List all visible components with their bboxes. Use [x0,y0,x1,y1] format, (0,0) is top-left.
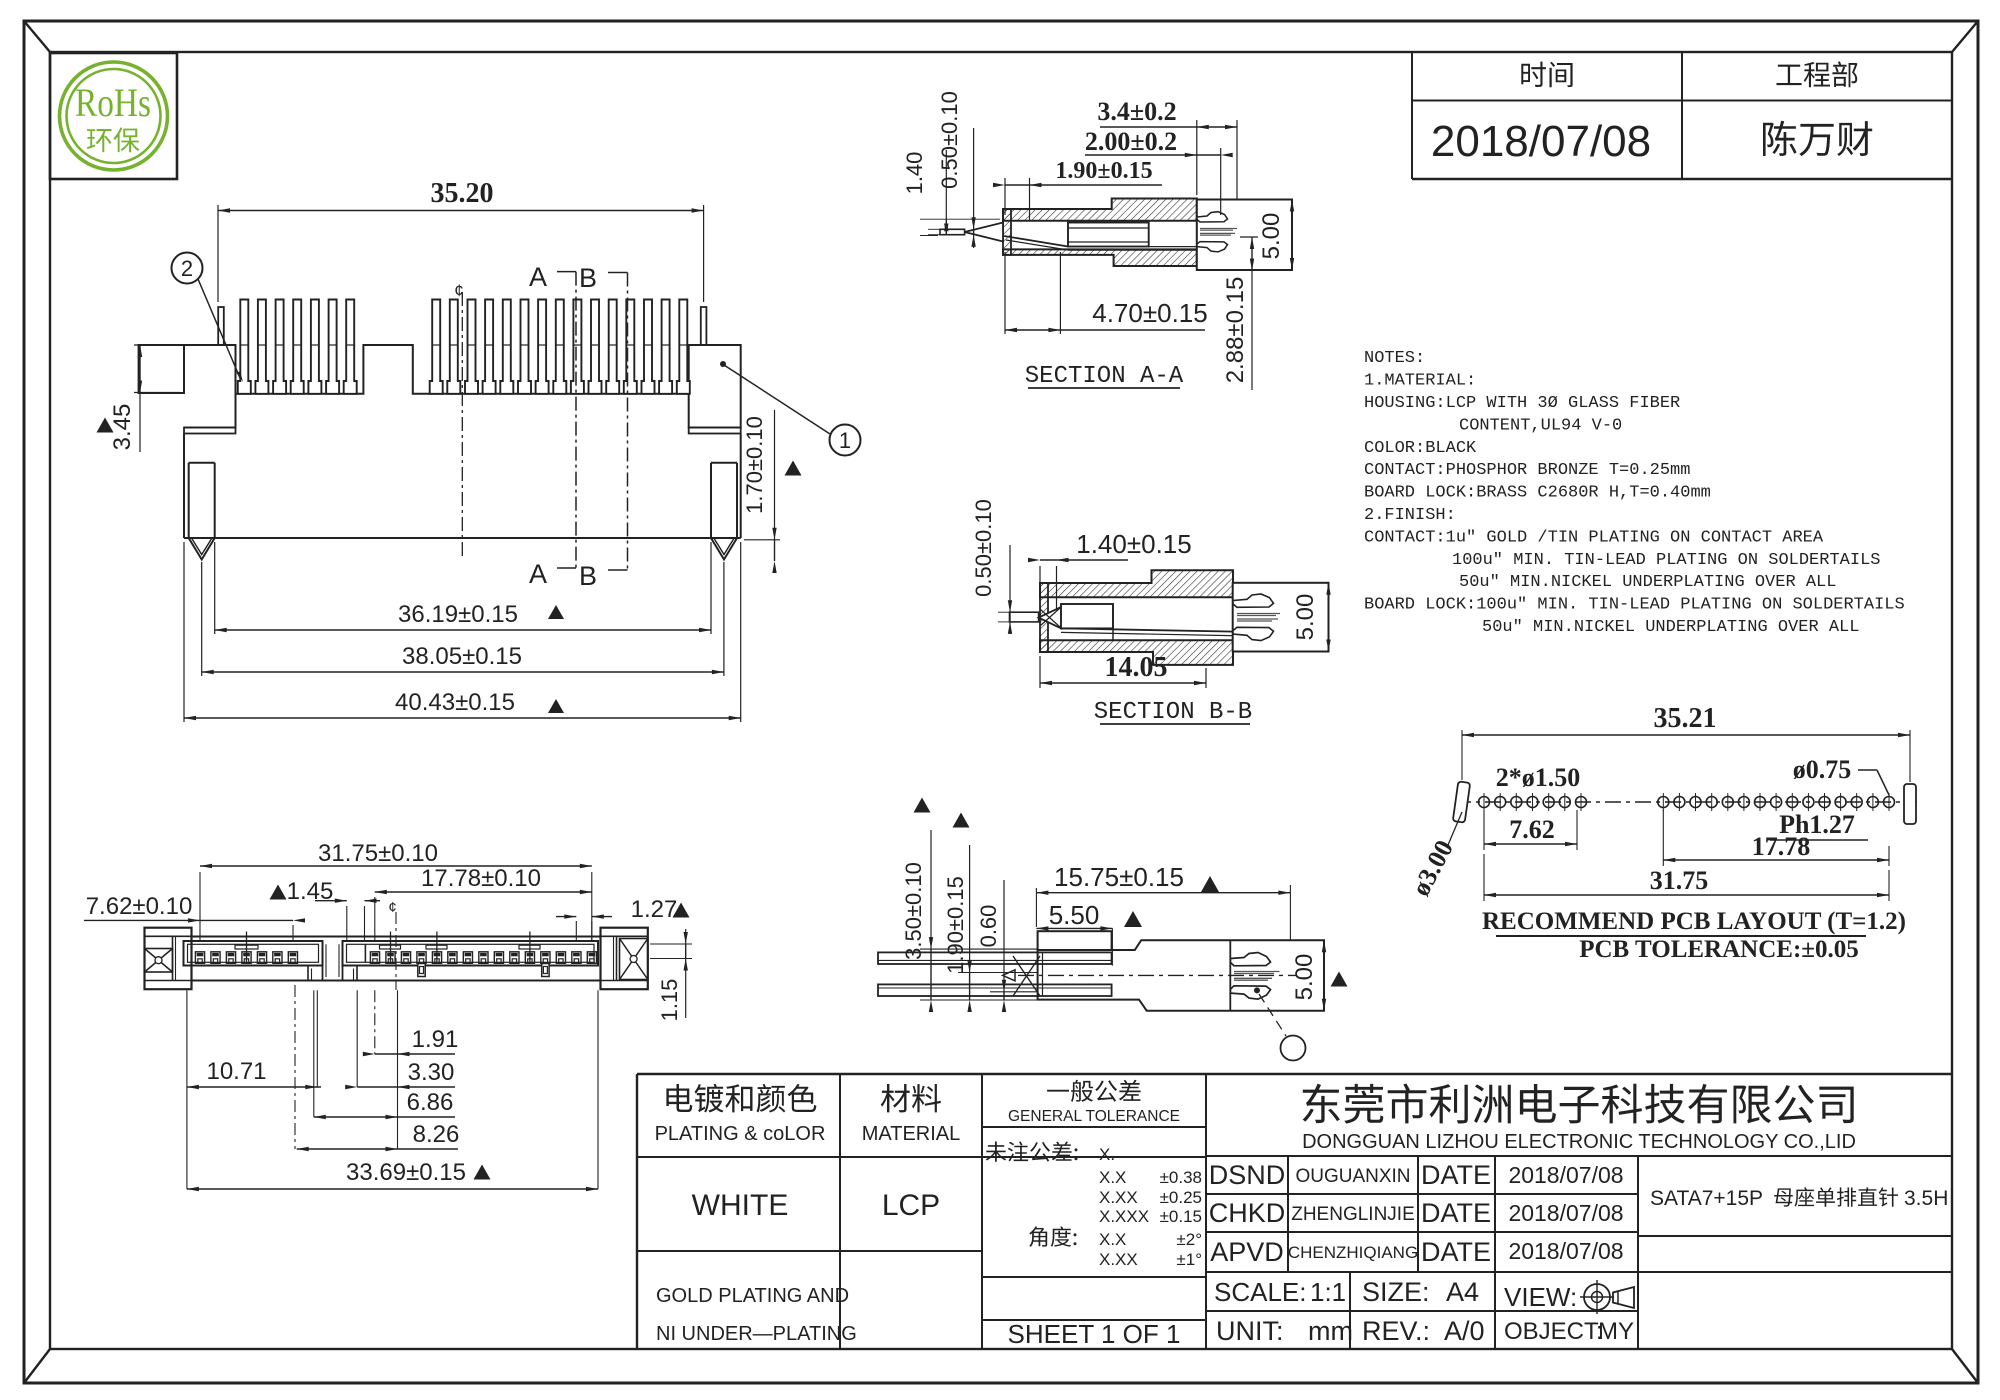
svg-text:A4: A4 [1446,1277,1479,1307]
svg-text:SHEET 1 OF 1: SHEET 1 OF 1 [1008,1319,1181,1349]
svg-text:X.X: X.X [1099,1230,1126,1249]
svg-text:35.20: 35.20 [431,178,494,209]
svg-text:3.5H: 3.5H [1904,1187,1948,1210]
svg-text:2.88±0.15: 2.88±0.15 [1222,277,1249,384]
svg-text:40.43±0.15: 40.43±0.15 [395,689,515,716]
svg-text:1.15: 1.15 [657,979,682,1022]
svg-text:1: 1 [839,428,851,453]
svg-text:X.: X. [1099,1145,1115,1164]
svg-text:SECTION B-B: SECTION B-B [1094,699,1252,726]
svg-text:2*ø1.50: 2*ø1.50 [1496,763,1581,792]
svg-text:X.X: X.X [1099,1168,1126,1187]
svg-text:5.00: 5.00 [1292,594,1319,641]
svg-text:DSND: DSND [1209,1160,1286,1190]
svg-text:31.75±0.10: 31.75±0.10 [318,840,438,867]
svg-text:B: B [579,561,597,591]
svg-text:HOUSING:LCP WITH 3Ø GLASS FIBE: HOUSING:LCP WITH 3Ø GLASS FIBER [1364,394,1680,413]
svg-text:ø0.75: ø0.75 [1793,755,1852,784]
svg-text:SECTION A-A: SECTION A-A [1025,363,1184,390]
svg-text:SCALE:: SCALE: [1214,1277,1307,1307]
svg-text:±1°: ±1° [1176,1250,1202,1269]
svg-text:±2°: ±2° [1176,1230,1202,1249]
svg-text:A: A [529,559,547,589]
svg-text:0.60: 0.60 [976,905,1001,948]
svg-text:¢: ¢ [388,899,396,916]
svg-text:DATE: DATE [1421,1198,1491,1228]
svg-text:3.4±0.2: 3.4±0.2 [1097,97,1176,126]
svg-text:CHENZHIQIANG: CHENZHIQIANG [1288,1243,1418,1262]
svg-text:1.27: 1.27 [631,896,678,923]
svg-text:5.00: 5.00 [1291,954,1318,1001]
svg-text:NOTES:: NOTES: [1364,349,1425,368]
svg-text:CONTACT:PHOSPHOR BRONZE T=0.25: CONTACT:PHOSPHOR BRONZE T=0.25mm [1364,461,1690,480]
svg-text:38.05±0.15: 38.05±0.15 [402,643,522,670]
svg-text:RECOMMEND PCB LAYOUT (T=1.2): RECOMMEND PCB LAYOUT (T=1.2) [1482,908,1906,935]
svg-text:GENERAL TOLERANCE: GENERAL TOLERANCE [1008,1108,1180,1125]
svg-text:MATERIAL: MATERIAL [862,1123,961,1145]
svg-text:CHKD: CHKD [1209,1198,1286,1228]
svg-text:X.XXX: X.XXX [1099,1207,1149,1226]
svg-text:17.78: 17.78 [1752,832,1811,861]
svg-text:1.45: 1.45 [287,878,334,905]
svg-text:0.50±0.10: 0.50±0.10 [937,91,962,189]
svg-text:1.90±0.15: 1.90±0.15 [1055,158,1152,184]
svg-text:B: B [579,263,597,293]
svg-text:OUGUANXIN: OUGUANXIN [1295,1166,1410,1187]
svg-text:¢: ¢ [454,281,463,300]
svg-text:2: 2 [181,256,193,281]
svg-text:6.86: 6.86 [407,1089,454,1116]
svg-text:35.21: 35.21 [1654,703,1717,734]
svg-text:7.62±0.10: 7.62±0.10 [86,893,193,920]
svg-text:2018/07/08: 2018/07/08 [1508,1238,1623,1264]
svg-text:100u" MIN. TIN-LEAD PLATING ON: 100u" MIN. TIN-LEAD PLATING ON SOLDERTAI… [1452,551,1880,570]
svg-text:BOARD LOCK:BRASS C2680R H,T=0.: BOARD LOCK:BRASS C2680R H,T=0.40mm [1364,484,1711,503]
svg-text:1.40: 1.40 [902,152,927,195]
svg-text:3.45: 3.45 [109,404,136,451]
svg-text:DATE: DATE [1421,1237,1491,1267]
svg-text:REV.:: REV.: [1362,1316,1430,1346]
svg-text:RoHs: RoHs [75,80,151,125]
svg-text:10.71: 10.71 [206,1058,266,1085]
svg-text:SATA7+15P: SATA7+15P [1650,1187,1763,1210]
svg-text:±0.25: ±0.25 [1160,1188,1202,1207]
svg-text:A: A [529,262,547,292]
svg-text:50u" MIN.NICKEL UNDERPLATING O: 50u" MIN.NICKEL UNDERPLATING OVER ALL [1459,573,1836,592]
svg-text:CONTENT,UL94 V-0: CONTENT,UL94 V-0 [1459,416,1622,435]
svg-text:5.00: 5.00 [1258,213,1285,260]
svg-text:2018/07/08: 2018/07/08 [1508,1200,1623,1226]
svg-text:7.62: 7.62 [1509,815,1555,844]
svg-text:1.90±0.15: 1.90±0.15 [943,876,968,974]
svg-text:36.19±0.15: 36.19±0.15 [398,601,518,628]
svg-text:UNIT:: UNIT: [1216,1316,1284,1346]
svg-text:31.75: 31.75 [1650,866,1709,895]
svg-text:3.30: 3.30 [408,1059,455,1086]
svg-text:MY: MY [1598,1318,1634,1345]
svg-text:ZHENGLINJIE: ZHENGLINJIE [1291,1204,1415,1225]
svg-text:PCB TOLERANCE:±0.05: PCB TOLERANCE:±0.05 [1579,936,1859,963]
svg-text:1.70±0.10: 1.70±0.10 [742,416,767,514]
svg-text:X.XX: X.XX [1099,1188,1138,1207]
svg-text:A/0: A/0 [1444,1316,1485,1346]
svg-text:APVD: APVD [1210,1237,1284,1267]
svg-text:1.MATERIAL:: 1.MATERIAL: [1364,372,1476,391]
svg-text:DONGGUAN LIZHOU ELECTRONIC TEC: DONGGUAN LIZHOU ELECTRONIC TECHNOLOGY CO… [1302,1131,1856,1153]
svg-text:2018/07/08: 2018/07/08 [1431,117,1651,166]
svg-text:NI UNDER—PLATING: NI UNDER—PLATING [656,1323,857,1345]
svg-text:17.78±0.10: 17.78±0.10 [421,865,541,892]
svg-text:LCP: LCP [882,1189,940,1222]
svg-text:1.40±0.15: 1.40±0.15 [1076,529,1191,559]
svg-text:±0.15: ±0.15 [1160,1207,1202,1226]
svg-text:GOLD PLATING AND: GOLD PLATING AND [656,1285,849,1307]
svg-text:VIEW:: VIEW: [1504,1282,1577,1312]
svg-text:COLOR:BLACK: COLOR:BLACK [1364,439,1477,458]
svg-text:8.26: 8.26 [413,1121,460,1148]
svg-text:1.91: 1.91 [412,1026,459,1053]
svg-text:OBJECT:: OBJECT: [1504,1318,1603,1345]
svg-text:4.70±0.15: 4.70±0.15 [1092,298,1207,328]
svg-text:DATE: DATE [1421,1160,1491,1190]
svg-text:1:1: 1:1 [1310,1277,1346,1307]
svg-text:5.50: 5.50 [1049,900,1100,930]
svg-text:2018/07/08: 2018/07/08 [1508,1162,1623,1188]
svg-text:BOARD LOCK:100u" MIN. TIN-LEAD: BOARD LOCK:100u" MIN. TIN-LEAD PLATING O… [1364,596,1905,615]
svg-text:WHITE: WHITE [692,1189,789,1222]
svg-text:mm: mm [1308,1316,1353,1346]
svg-text:CONTACT:1u" GOLD /TIN PLATING: CONTACT:1u" GOLD /TIN PLATING ON CONTACT… [1364,528,1824,547]
svg-text:PLATING & coLOR: PLATING & coLOR [655,1123,826,1145]
svg-text:14.05: 14.05 [1105,652,1168,683]
svg-text:±0.38: ±0.38 [1160,1168,1202,1187]
svg-text:0.50±0.10: 0.50±0.10 [971,499,996,597]
svg-text:15.75±0.15: 15.75±0.15 [1054,862,1184,892]
svg-text:SIZE:: SIZE: [1362,1277,1430,1307]
svg-text:2.00±0.2: 2.00±0.2 [1085,127,1177,156]
svg-text:50u" MIN.NICKEL UNDERPLATING O: 50u" MIN.NICKEL UNDERPLATING OVER ALL [1482,618,1859,637]
svg-text:X.XX: X.XX [1099,1250,1138,1269]
svg-text:2.FINISH:: 2.FINISH: [1364,506,1456,525]
svg-text:33.69±0.15: 33.69±0.15 [346,1159,466,1186]
svg-text:3.50±0.10: 3.50±0.10 [901,862,926,960]
